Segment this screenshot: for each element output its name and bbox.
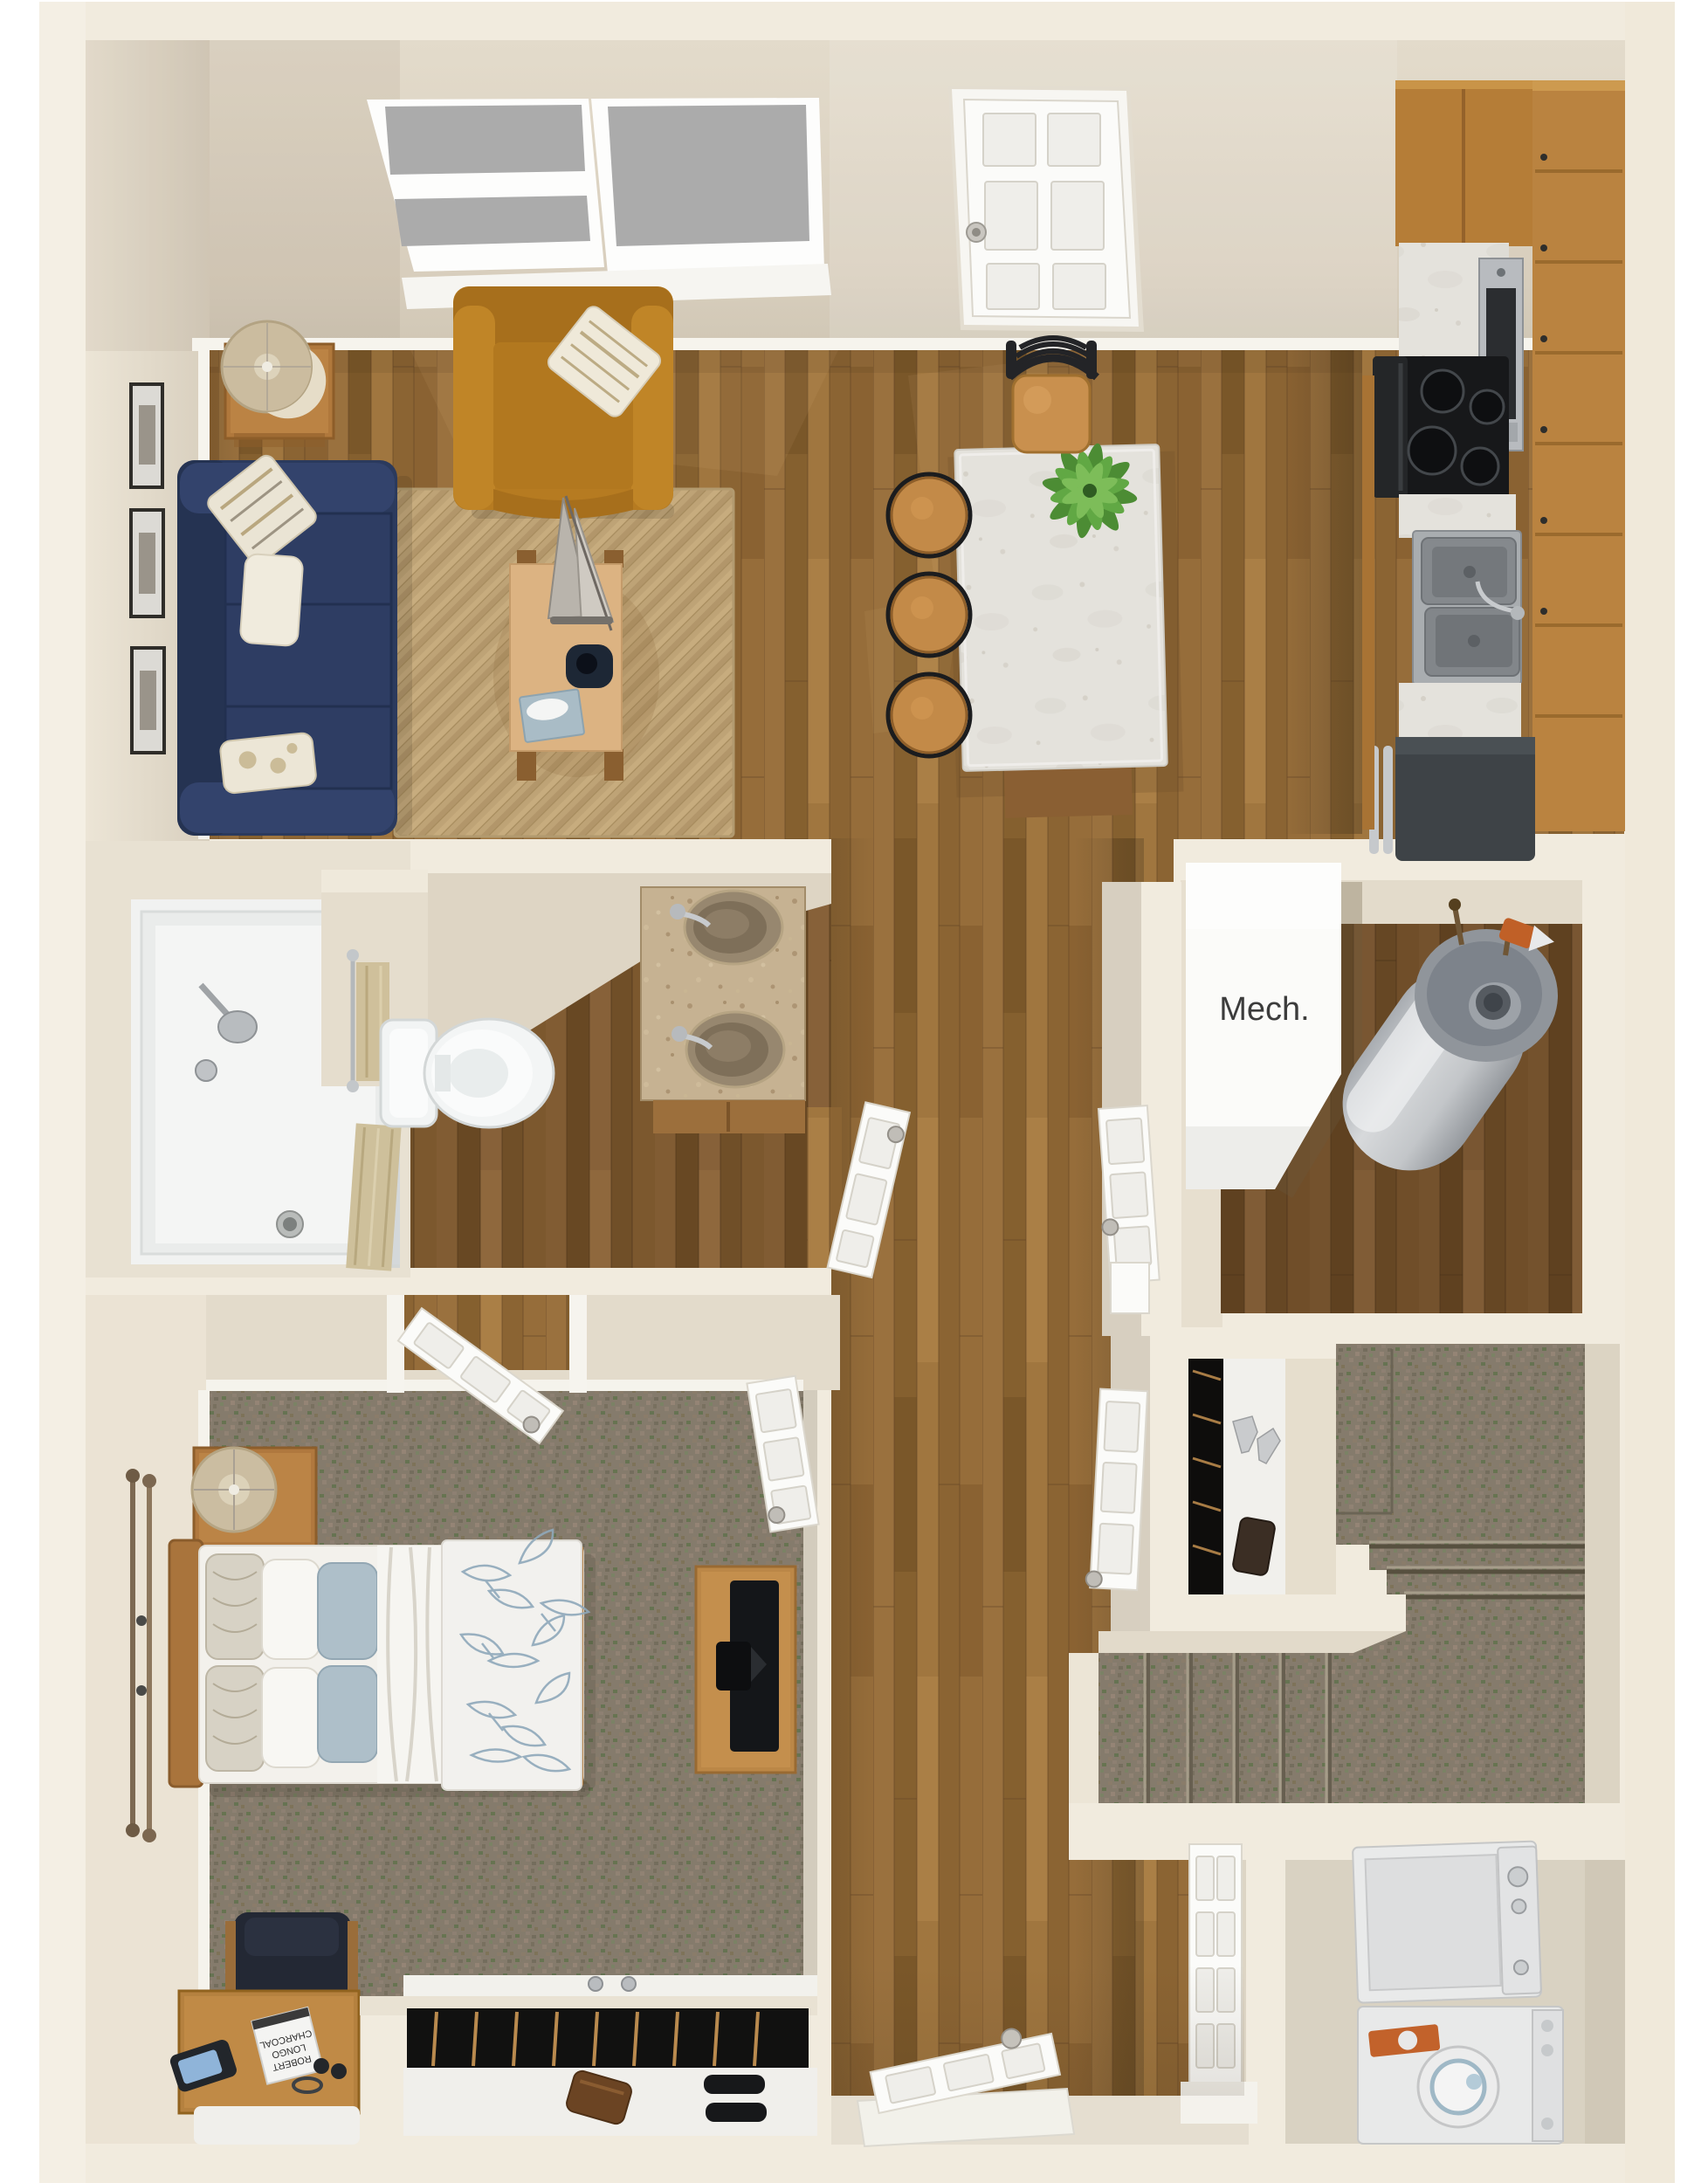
svg-text:Mech.: Mech. [1219,991,1309,1028]
